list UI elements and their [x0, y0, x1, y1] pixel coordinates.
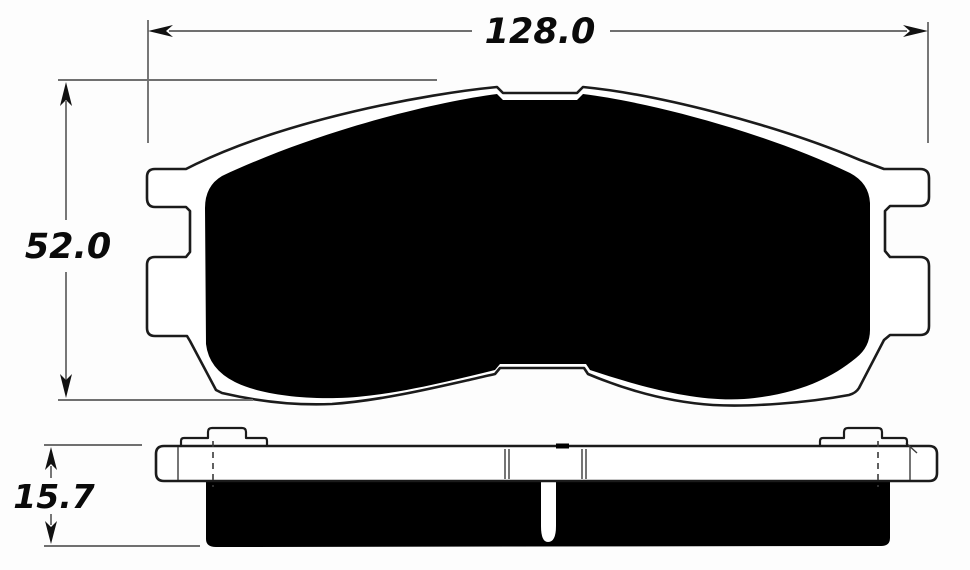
height-value: 52.0	[25, 227, 111, 267]
brake-pad-technical-drawing: 128.0 52.0 15.7	[0, 0, 970, 570]
pad-front-view	[147, 87, 929, 406]
width-value: 128.0	[485, 12, 596, 52]
pad-side-view	[156, 428, 937, 547]
thickness-value: 15.7	[13, 477, 94, 516]
wear-slot	[541, 481, 556, 542]
retainer-clip-right	[820, 428, 907, 446]
drawing-canvas: 128.0 52.0 15.7	[0, 0, 970, 570]
backing-plate-side	[156, 446, 937, 481]
retainer-clip-left	[181, 428, 267, 446]
